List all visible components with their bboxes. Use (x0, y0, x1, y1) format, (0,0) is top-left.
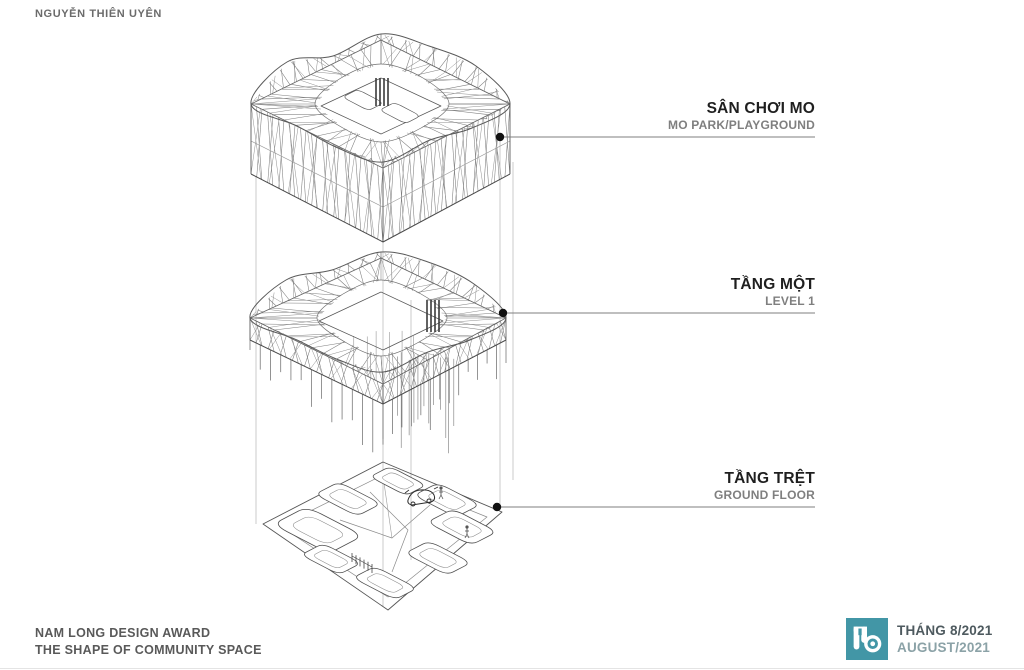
mo-park-level-drawing (251, 34, 510, 242)
label-level-1: TẦNG MỘT LEVEL 1 (731, 276, 815, 313)
mo-park-logo-icon (846, 618, 888, 665)
level-title-vi: TẦNG MỘT (731, 276, 815, 294)
label-mo-park: SÂN CHƠI MO MO PARK/PLAYGROUND (668, 100, 815, 137)
level-title-en: LEVEL 1 (765, 294, 815, 309)
level-markers (493, 133, 815, 511)
level-title-en: GROUND FLOOR (714, 488, 815, 503)
level-1-drawing (250, 252, 506, 453)
presentation-slide: NGUYỄN THIÊN UYÊN SÂN CHƠI MO MO PARK/PL… (0, 0, 1024, 670)
award-title: NAM LONG DESIGN AWARD (35, 625, 262, 642)
slide-bottom-edge (0, 668, 1024, 669)
ground-floor-drawing (263, 462, 502, 610)
award-subtitle: THE SHAPE OF COMMUNITY SPACE (35, 642, 262, 659)
award-text: NAM LONG DESIGN AWARD THE SHAPE OF COMMU… (35, 625, 262, 658)
level-marker-dot (499, 309, 507, 317)
level-marker-dot (496, 133, 504, 141)
date-english: AUGUST/2021 (897, 639, 992, 656)
level-title-vi: SÂN CHƠI MO (707, 100, 815, 118)
exploded-axonometric-drawing (0, 0, 1024, 670)
label-ground-floor: TẦNG TRỆT GROUND FLOOR (714, 470, 815, 507)
date-vietnamese: THÁNG 8/2021 (897, 622, 992, 639)
level-marker-dot (493, 503, 501, 511)
level-title-en: MO PARK/PLAYGROUND (668, 118, 815, 133)
level-title-vi: TẦNG TRỆT (725, 470, 816, 488)
date-block: THÁNG 8/2021 AUGUST/2021 (846, 618, 992, 665)
